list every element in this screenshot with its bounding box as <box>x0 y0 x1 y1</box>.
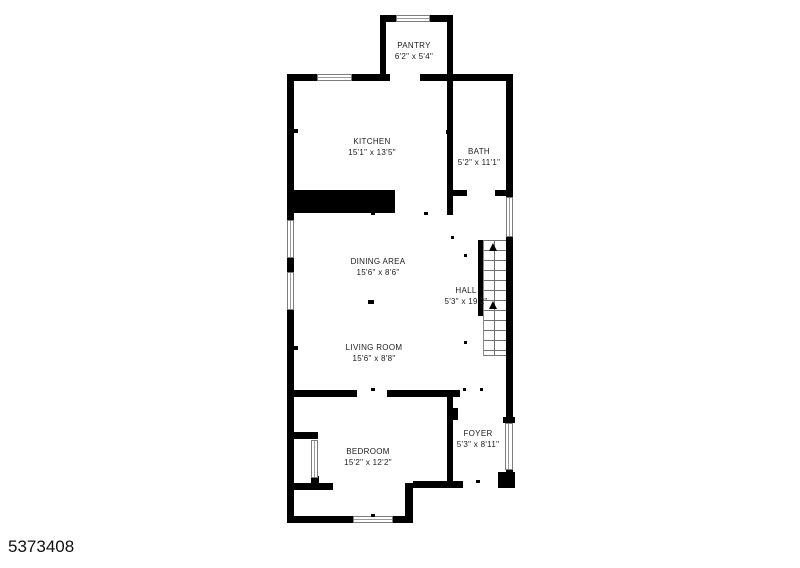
wall-bath-bottom-left <box>453 190 467 196</box>
dimension-tick <box>476 480 480 483</box>
wall-closet-bottom <box>287 483 333 490</box>
room-dims: 5'3" x 19'2" <box>444 296 487 307</box>
dimension-tick <box>480 388 483 391</box>
wall-closet-top <box>287 432 318 439</box>
room-name: LIVING ROOM <box>346 342 403 353</box>
wall-living-bedroom-left <box>287 390 357 397</box>
plan-id: 5373408 <box>8 537 74 557</box>
room-label-bedroom: BEDROOM 15'2" x 12'2" <box>344 446 392 468</box>
dimension-tick <box>371 388 375 391</box>
dimension-tick <box>371 514 375 517</box>
dimension-tick <box>294 129 298 133</box>
room-dims: 5'3" x 8'11" <box>457 439 499 450</box>
room-label-foyer: FOYER 5'3" x 8'11" <box>457 428 499 450</box>
room-dims: 5'2" x 11'1" <box>458 157 500 168</box>
window-dining-left-2 <box>287 272 294 310</box>
room-name: PANTRY <box>395 40 433 51</box>
wall-pantry-left <box>380 15 386 74</box>
room-label-pantry: PANTRY 6'2" x 5'4" <box>395 40 433 62</box>
room-label-dining-area: DINING AREA 15'6" x 8'6" <box>351 256 406 278</box>
wall-foyer-corner-block <box>498 472 515 488</box>
wall-foyer-bottom <box>413 481 463 488</box>
staircase-center-rail <box>494 240 495 355</box>
wall-pantry-right-bath-left <box>447 15 453 215</box>
dimension-tick <box>464 341 467 344</box>
stairs-up-arrow-icon <box>489 243 497 251</box>
room-dims: 15'6" x 8'6" <box>351 267 406 278</box>
dimension-tick <box>464 254 467 257</box>
window-bedroom-bottom <box>353 516 393 523</box>
wall-foyer-door-stub <box>453 408 458 420</box>
room-dims: 15'1" x 13'5" <box>348 147 396 158</box>
dimension-tick <box>368 300 374 304</box>
wall-bath-bottom-right <box>495 190 506 196</box>
window-pantry <box>396 15 430 22</box>
wall-top-right-segment <box>420 74 510 81</box>
closet-door-panel <box>311 440 318 478</box>
room-label-living-room: LIVING ROOM 15'6" x 8'8" <box>346 342 403 364</box>
room-dims: 15'6" x 8'8" <box>346 353 403 364</box>
dimension-tick <box>424 212 428 215</box>
window-bath-right <box>506 197 513 237</box>
dimension-tick <box>451 236 454 239</box>
room-name: BEDROOM <box>344 446 392 457</box>
dimension-tick <box>294 346 298 350</box>
dimension-tick <box>446 130 450 134</box>
room-label-hall: HALL 5'3" x 19'2" <box>444 285 487 307</box>
wall-bedroom-right <box>447 390 453 483</box>
dimension-tick <box>463 388 466 391</box>
floorplan: PANTRY 6'2" x 5'4" KITCHEN 15'1" x 13'5"… <box>0 0 800 568</box>
stairs-up-arrow-icon <box>489 301 497 309</box>
dimension-tick <box>371 212 375 215</box>
room-label-bath: BATH 5'2" x 11'1" <box>458 146 500 168</box>
room-name: KITCHEN <box>348 136 396 147</box>
kitchen-counter-block <box>294 190 395 213</box>
wall-bedroom-bottom <box>287 516 413 523</box>
room-name: FOYER <box>457 428 499 439</box>
room-name: BATH <box>458 146 500 157</box>
window-dining-left-1 <box>287 220 294 258</box>
window-foyer-right <box>505 423 513 470</box>
room-name: DINING AREA <box>351 256 406 267</box>
wall-bedroom-corner-vertical <box>405 483 413 523</box>
room-dims: 6'2" x 5'4" <box>395 51 433 62</box>
room-label-kitchen: KITCHEN 15'1" x 13'5" <box>348 136 396 158</box>
room-dims: 15'2" x 12'2" <box>344 457 392 468</box>
window-kitchen <box>317 74 352 81</box>
room-name: HALL <box>444 285 487 296</box>
